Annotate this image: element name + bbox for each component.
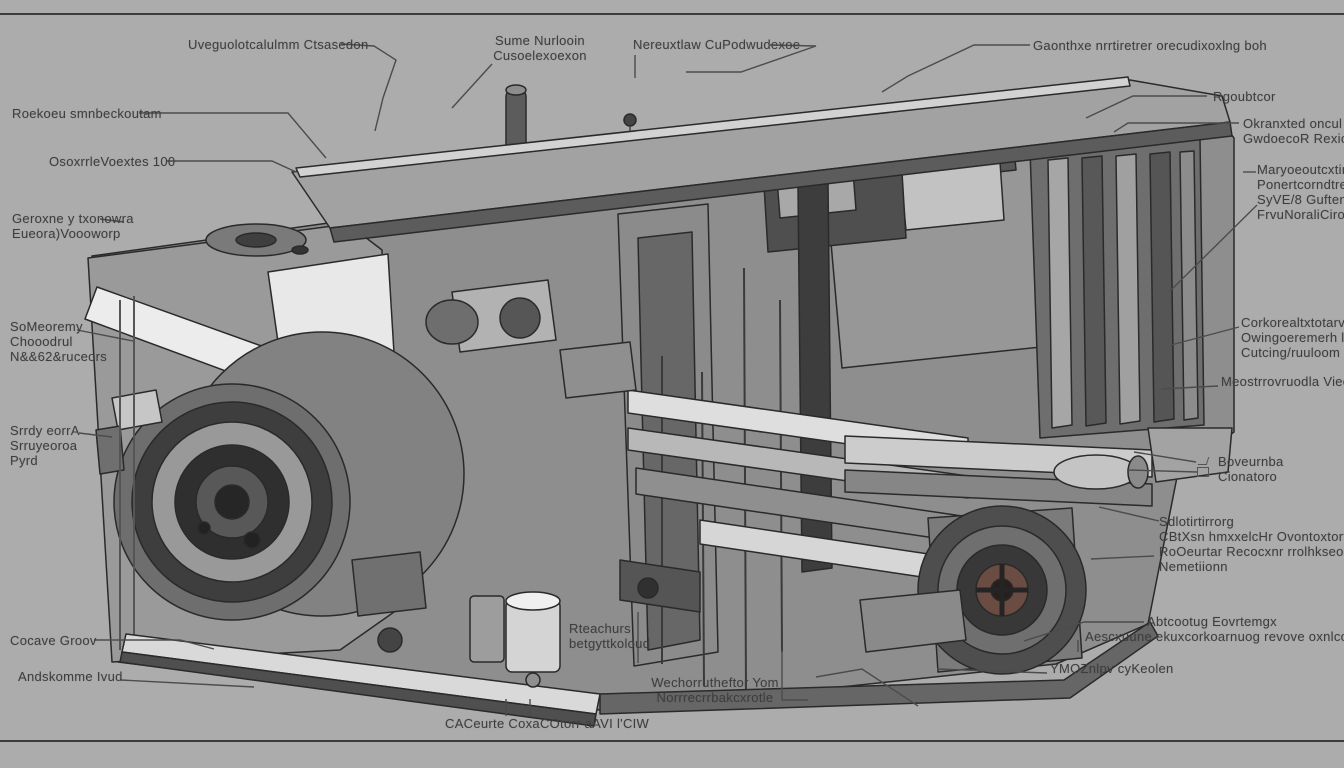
part-label: Nereuxtlaw CuPodwudexoe: [633, 37, 800, 52]
part-label: Maryoeoutcxtirrt Ponertcorndtrenioo SyVE…: [1257, 162, 1344, 222]
leader-line: [121, 680, 254, 687]
leader-line: [167, 161, 296, 172]
leader-line: [79, 433, 112, 437]
leader-line: [1091, 556, 1154, 559]
part-label: Sdlotirtirrorg CBtXsn hmxxelcHr Ovontoxt…: [1159, 514, 1344, 574]
leader-line: [452, 64, 492, 108]
leader-line: [1127, 470, 1197, 472]
part-label: Roekoeu smnbeckoutam: [12, 106, 162, 121]
part-label: Uveguolotcalulmm Ctsasedon: [188, 37, 369, 52]
part-label: Sume Nurlooin Cusoelexoexon: [465, 33, 615, 63]
part-label: Abtcootug Eovrtemgx: [1147, 614, 1277, 629]
part-label: Srrdy eorrA Srruyeoroa Pyrd: [10, 423, 80, 468]
part-label: Aescxuune ekuxcorkoarnuog revove oxnlcoo…: [1085, 629, 1344, 644]
part-label: Andskomme Ivud: [18, 669, 123, 684]
leader-lines-layer: [0, 0, 1344, 768]
part-label: Okranxted oncul Go GwdoecoR Rexiownr: [1243, 116, 1344, 146]
leader-line: [94, 640, 214, 649]
leader-line: [1086, 96, 1207, 118]
part-label: Boveurnba Cionatoro: [1218, 454, 1284, 484]
leader-line: [816, 669, 918, 706]
part-label: Corkorealtxtotarvlnc Owingoeremerh luket…: [1241, 315, 1344, 360]
part-label: Gaonthxe nrrtiretrer orecudixoxlng boh: [1033, 38, 1267, 53]
box-glyph: [1197, 467, 1209, 477]
leader-line: [1134, 452, 1196, 462]
part-label: SoMeoremy Chooodrul N&&62&ruceors: [10, 319, 107, 364]
part-label: Wechorrutheftor Yom Norrrecrrbakcxrotle: [630, 675, 800, 705]
part-label: Meostrrovruodla Vieoette: [1221, 374, 1344, 389]
leader-line: [1170, 205, 1257, 291]
part-label: Geroxne y txonowra Eueora)Voooworp: [12, 211, 134, 241]
part-label: Rgoubtcor: [1213, 89, 1276, 104]
leader-line: [1114, 123, 1239, 132]
part-label: OsoxrrleVoextes 100: [49, 154, 175, 169]
component-icon: [1197, 457, 1210, 479]
diagram-canvas: Uveguolotcalulmm Ctsasedon Roekoeu smnbe…: [0, 0, 1344, 768]
leader-line: [937, 669, 1047, 673]
leader-line: [882, 45, 1030, 92]
leader-line: [1099, 507, 1159, 521]
leader-line: [1171, 327, 1239, 345]
part-label: Cocave Groov: [10, 633, 97, 648]
leader-line: [1161, 386, 1218, 389]
leader-line: [139, 113, 326, 158]
leader-line: [341, 44, 396, 131]
part-label: YMOZnlpv cyKeolen: [1050, 661, 1174, 676]
pointer-glyph: [1198, 457, 1210, 465]
part-label: Rteachurs betgyttkoloud: [569, 621, 650, 651]
part-label: CACeurte CoxaCOtorr aAVI l'CIW: [445, 716, 649, 731]
